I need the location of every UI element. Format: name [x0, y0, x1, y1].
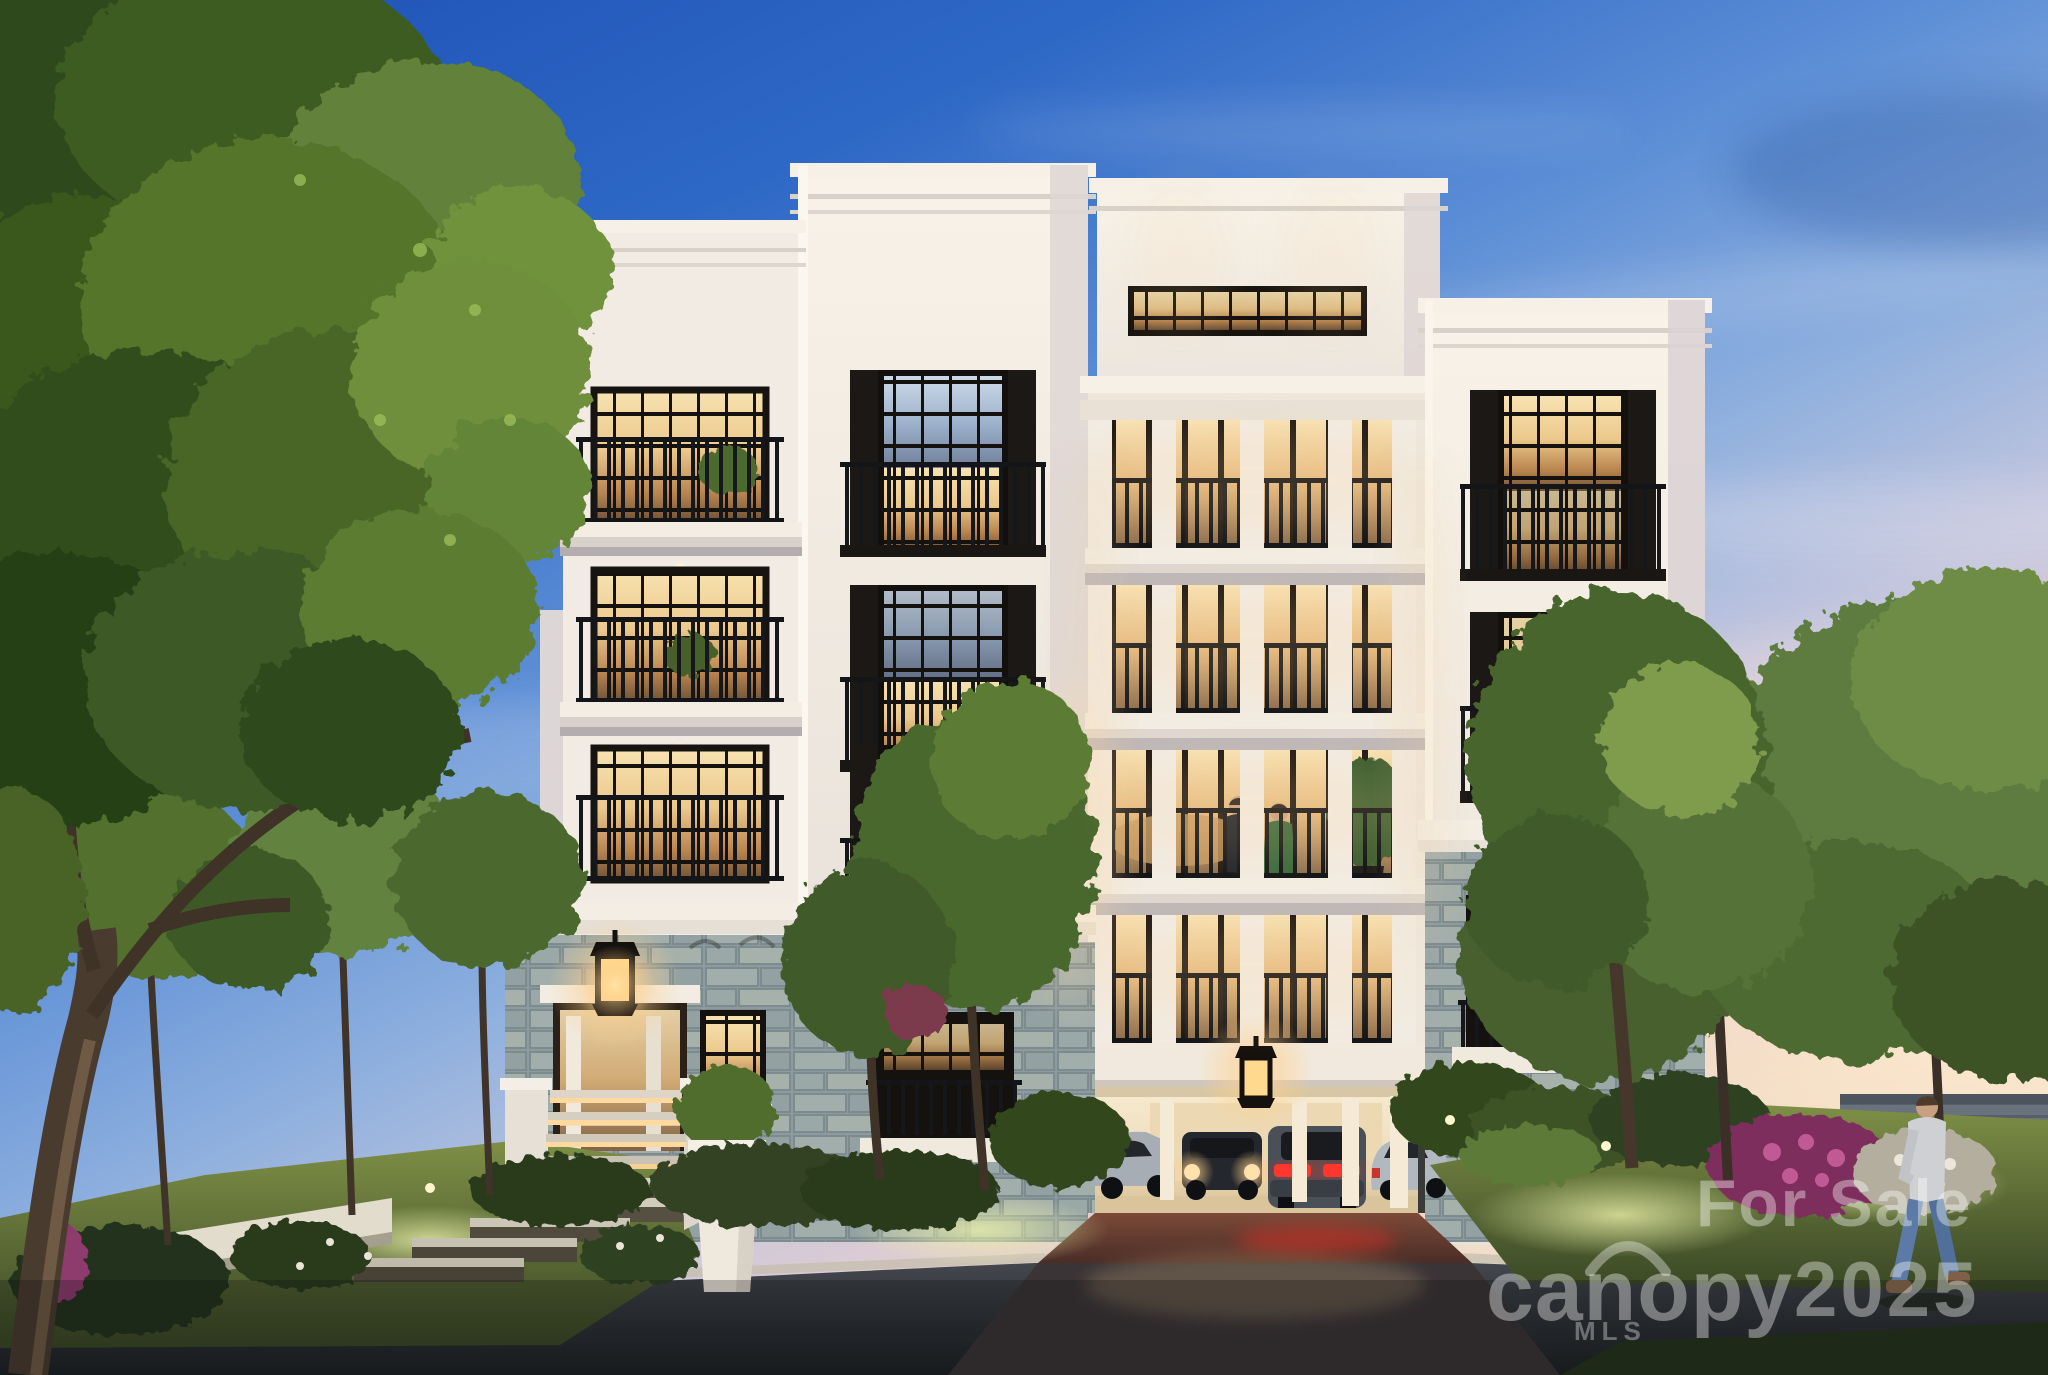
watermark-mls: MLS: [1574, 1318, 1647, 1344]
tower-left-window-1: [840, 370, 1046, 557]
watermark-for-sale: For Sale: [1696, 1170, 1972, 1236]
garage-lantern-icon: [1198, 1014, 1314, 1130]
car-suv-dark: [1170, 1132, 1274, 1200]
right-tower-window-1: [1460, 390, 1666, 581]
left-balcony-3: [576, 748, 784, 881]
taillight-reflection: [1236, 1226, 1396, 1254]
left-balcony-1: [560, 390, 802, 573]
watermark-year: 2025: [1794, 1250, 1980, 1328]
listing-photo: For Sale canopy MLS 2025: [0, 0, 2048, 1375]
canopy-logo-arc-icon: [1580, 1228, 1676, 1276]
left-balcony-2: [560, 570, 802, 753]
